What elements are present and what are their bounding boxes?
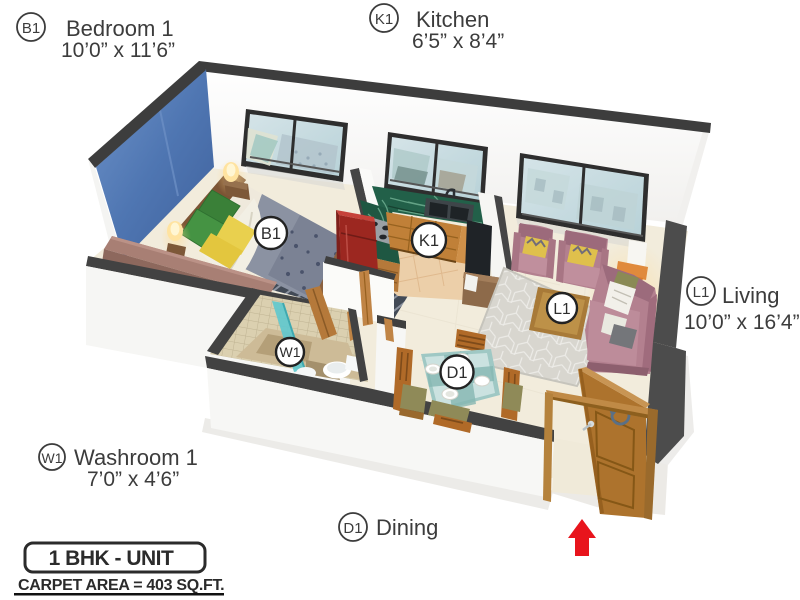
svg-text:Bedroom 1: Bedroom 1 xyxy=(66,16,174,41)
svg-text:Living: Living xyxy=(722,283,779,308)
svg-text:Dining: Dining xyxy=(376,515,438,540)
svg-text:CARPET AREA = 403 SQ.FT.: CARPET AREA = 403 SQ.FT. xyxy=(18,577,224,594)
svg-text:L1: L1 xyxy=(553,301,570,318)
svg-text:10’0” x 11’6”: 10’0” x 11’6” xyxy=(61,39,175,62)
svg-text:D1: D1 xyxy=(446,364,467,382)
svg-text:W1: W1 xyxy=(280,344,301,360)
svg-text:6’5” x 8’4”: 6’5” x 8’4” xyxy=(412,30,504,53)
svg-text:B1: B1 xyxy=(22,20,40,37)
svg-text:K1: K1 xyxy=(375,11,393,28)
svg-text:W1: W1 xyxy=(42,450,63,466)
svg-text:K1: K1 xyxy=(419,232,439,250)
svg-text:10’0” x 16’4”: 10’0” x 16’4” xyxy=(684,311,800,334)
svg-text:L1: L1 xyxy=(693,284,710,301)
svg-text:B1: B1 xyxy=(261,225,281,243)
svg-text:Washroom 1: Washroom 1 xyxy=(74,445,198,470)
svg-text:1 BHK - UNIT: 1 BHK - UNIT xyxy=(49,547,174,570)
svg-text:7’0” x 4’6”: 7’0” x 4’6” xyxy=(87,468,179,491)
svg-text:Kitchen: Kitchen xyxy=(416,7,489,32)
svg-text:D1: D1 xyxy=(343,520,362,537)
